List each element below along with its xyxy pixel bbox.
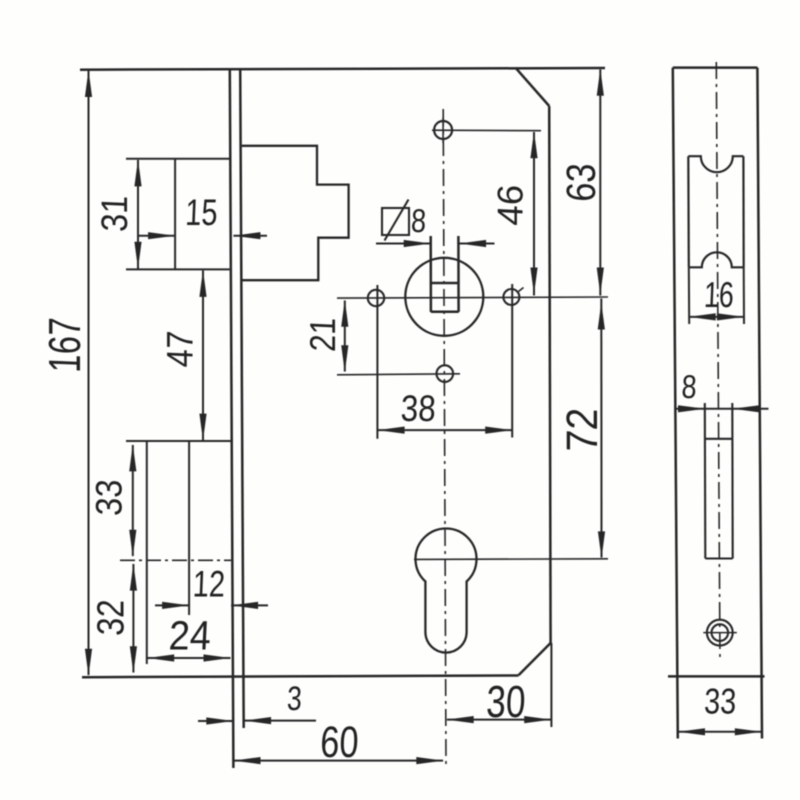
svg-text:12: 12 — [192, 564, 226, 605]
svg-text:15: 15 — [185, 193, 219, 234]
svg-text:46: 46 — [490, 184, 531, 227]
svg-text:33: 33 — [703, 680, 737, 721]
svg-text:31: 31 — [94, 194, 135, 232]
svg-text:24: 24 — [168, 613, 212, 659]
svg-text:16: 16 — [703, 274, 734, 315]
svg-text:32: 32 — [90, 599, 132, 637]
svg-text:60: 60 — [319, 718, 359, 767]
svg-text:47: 47 — [160, 330, 201, 368]
svg-text:8: 8 — [410, 204, 427, 240]
svg-text:72: 72 — [557, 407, 606, 453]
svg-text:63: 63 — [559, 162, 604, 202]
svg-text:8: 8 — [681, 369, 698, 405]
svg-text:167: 167 — [40, 317, 90, 374]
svg-text:30: 30 — [485, 676, 526, 727]
svg-text:33: 33 — [89, 478, 130, 516]
svg-text:38: 38 — [400, 388, 437, 429]
svg-text:21: 21 — [304, 317, 344, 353]
svg-text:3: 3 — [286, 680, 302, 718]
